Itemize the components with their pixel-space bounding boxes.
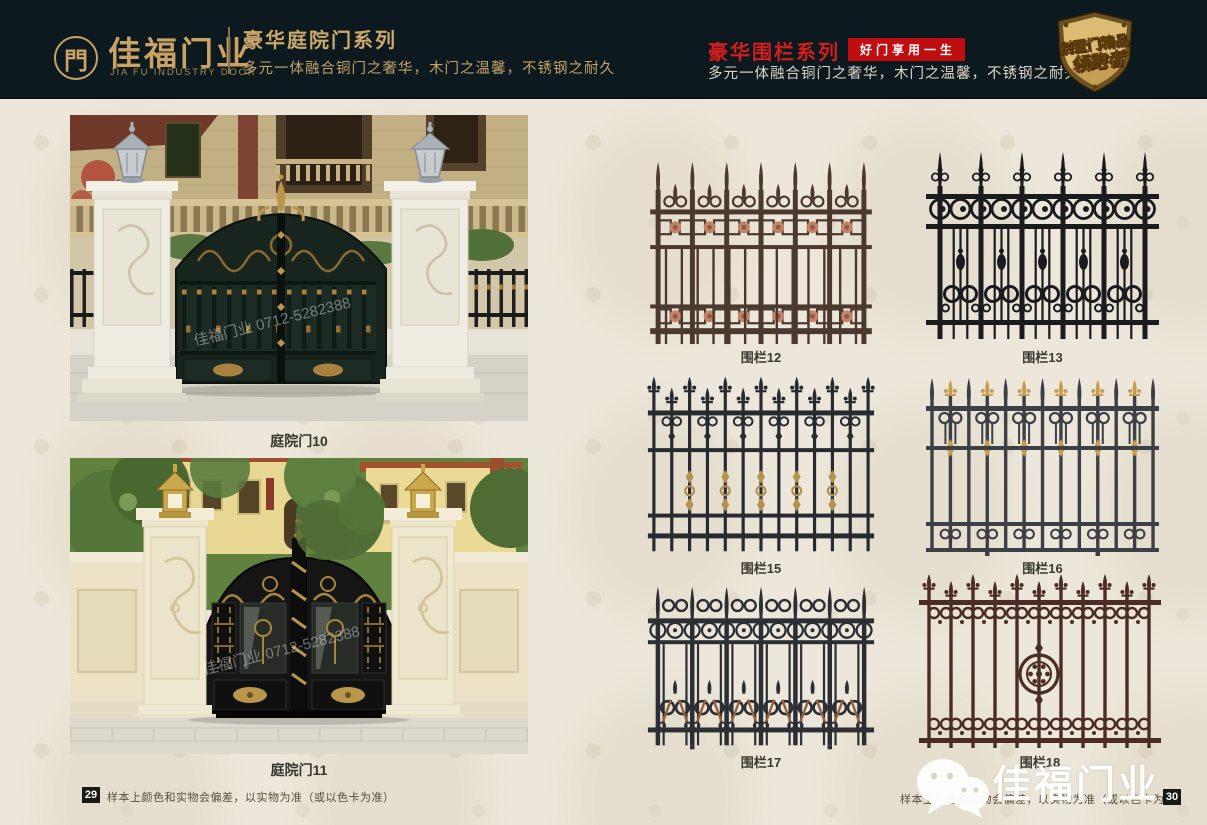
disclaimer-left: 样本上颜色和实物会偏差，以实物为准（或以色卡为准） [107, 789, 395, 805]
catalog-header: 門 佳福门业 JIA FU INDUSTRY DOOR 豪华庭院门系列 多元一体… [0, 0, 1207, 99]
fence-15-label: 围栏15 [642, 558, 880, 577]
brand-logo-icon: 門 [54, 36, 98, 80]
door-series-subtitle: 多元一体融合铜门之奢华，木门之温馨，不锈钢之耐久 [243, 57, 615, 78]
slogan-badge: 好门享用一生 [848, 38, 965, 61]
header-divider [228, 27, 230, 74]
gate-10-label: 庭院门10 [70, 431, 528, 451]
gold-shield-medal-icon: 别墅门精品 别墅门精品 领跑者 领跑者 [1048, 9, 1142, 95]
fence-12-label: 围栏12 [642, 347, 880, 366]
logo-glyph: 門 [64, 41, 88, 76]
page-number-left: 29 [82, 787, 100, 803]
brand-watermark: 佳福门业 [916, 740, 1192, 824]
fence-series-subtitle: 多元一体融合铜门之奢华，木门之温馨，不锈钢之耐久 [708, 62, 1080, 83]
fence-16-label: 围栏16 [920, 558, 1165, 577]
fence-series-title: 豪华围栏系列 [708, 36, 840, 65]
gate-photo-11: 佳福门业 0712-5282388 [70, 458, 528, 754]
fence-17-illustration [642, 578, 880, 750]
fence-13-illustration [920, 148, 1165, 346]
fence-16-illustration [920, 374, 1165, 556]
fence-12-illustration [642, 158, 880, 346]
fence-17-label: 围栏17 [642, 752, 880, 771]
stone-pillar [78, 181, 186, 403]
gate-11-label: 庭院门11 [70, 760, 528, 780]
stone-pillar [134, 508, 216, 726]
pilaster [238, 115, 258, 199]
gate-photo-10: 佳福门业 0712-5282388 [70, 115, 528, 421]
window-shutter [166, 123, 200, 177]
door-series-title: 豪华庭院门系列 [243, 24, 397, 53]
fence-15-illustration [642, 374, 880, 556]
brand-watermark-text: 佳福门业 [992, 754, 1160, 810]
brand-name-en: JIA FU INDUSTRY DOOR [110, 67, 257, 78]
wechat-icon [916, 756, 990, 820]
fence-18-illustration [915, 572, 1165, 752]
fence-13-label: 围栏13 [920, 347, 1165, 366]
